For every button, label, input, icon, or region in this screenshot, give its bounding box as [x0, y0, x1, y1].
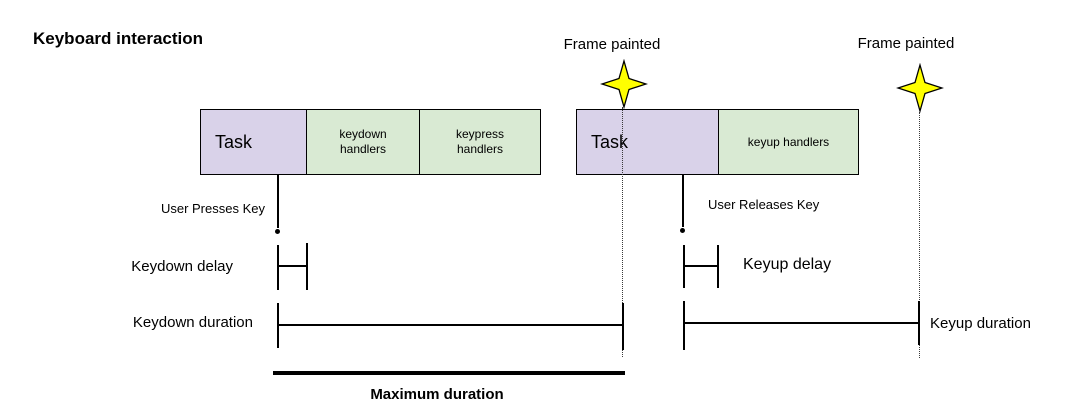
keydown-delay-tick-right: [306, 243, 308, 290]
star-icon: [600, 59, 648, 109]
task-block: Task: [576, 109, 719, 175]
press-event-dot: [275, 229, 280, 234]
keyboard-interaction-diagram: Keyboard interaction Frame painted Frame…: [0, 0, 1080, 420]
keyup-duration-span: [683, 322, 920, 324]
frame-painted-label-1: Frame painted: [540, 36, 684, 53]
task-label: Task: [215, 132, 252, 153]
keyup-duration-tick-left: [683, 301, 685, 350]
keypress-handlers-label: keypress handlers: [444, 127, 516, 157]
keyup-duration-label: Keyup duration: [930, 315, 1031, 332]
user-presses-key-label: User Presses Key: [115, 201, 265, 216]
keyup-delay-span: [683, 265, 719, 267]
keyup-delay-tick-left: [683, 245, 685, 288]
keyup-task-row: Task keyup handlers: [576, 109, 859, 175]
keydown-handlers-block: keydown handlers: [307, 109, 420, 175]
keydown-duration-tick-left: [277, 303, 279, 348]
keypress-handlers-block: keypress handlers: [420, 109, 541, 175]
keydown-duration-label: Keydown duration: [103, 314, 253, 331]
press-event-line: [277, 175, 279, 228]
keydown-delay-label: Keydown delay: [83, 258, 233, 275]
frame-painted-label-2: Frame painted: [834, 35, 978, 52]
maximum-duration-label: Maximum duration: [337, 386, 537, 403]
keydown-task-row: Task keydown handlers keypress handlers: [200, 109, 541, 175]
keydown-duration-span: [277, 324, 624, 326]
keyup-delay-tick-right: [717, 245, 719, 288]
maximum-duration-bar: [273, 371, 625, 375]
star-icon: [896, 63, 944, 113]
user-releases-key-label: User Releases Key: [708, 197, 819, 212]
release-event-line: [682, 174, 684, 227]
release-event-dot: [680, 228, 685, 233]
keydown-delay-tick-left: [277, 245, 279, 290]
diagram-title: Keyboard interaction: [33, 29, 203, 49]
keyup-delay-label: Keyup delay: [743, 256, 831, 274]
keydown-handlers-label: keydown handlers: [327, 127, 399, 157]
keyup-handlers-block: keyup handlers: [719, 109, 859, 175]
task-block: Task: [200, 109, 307, 175]
keydown-delay-span: [277, 265, 308, 267]
keydown-duration-tick-right: [622, 303, 624, 350]
keyup-handlers-label: keyup handlers: [748, 135, 829, 150]
